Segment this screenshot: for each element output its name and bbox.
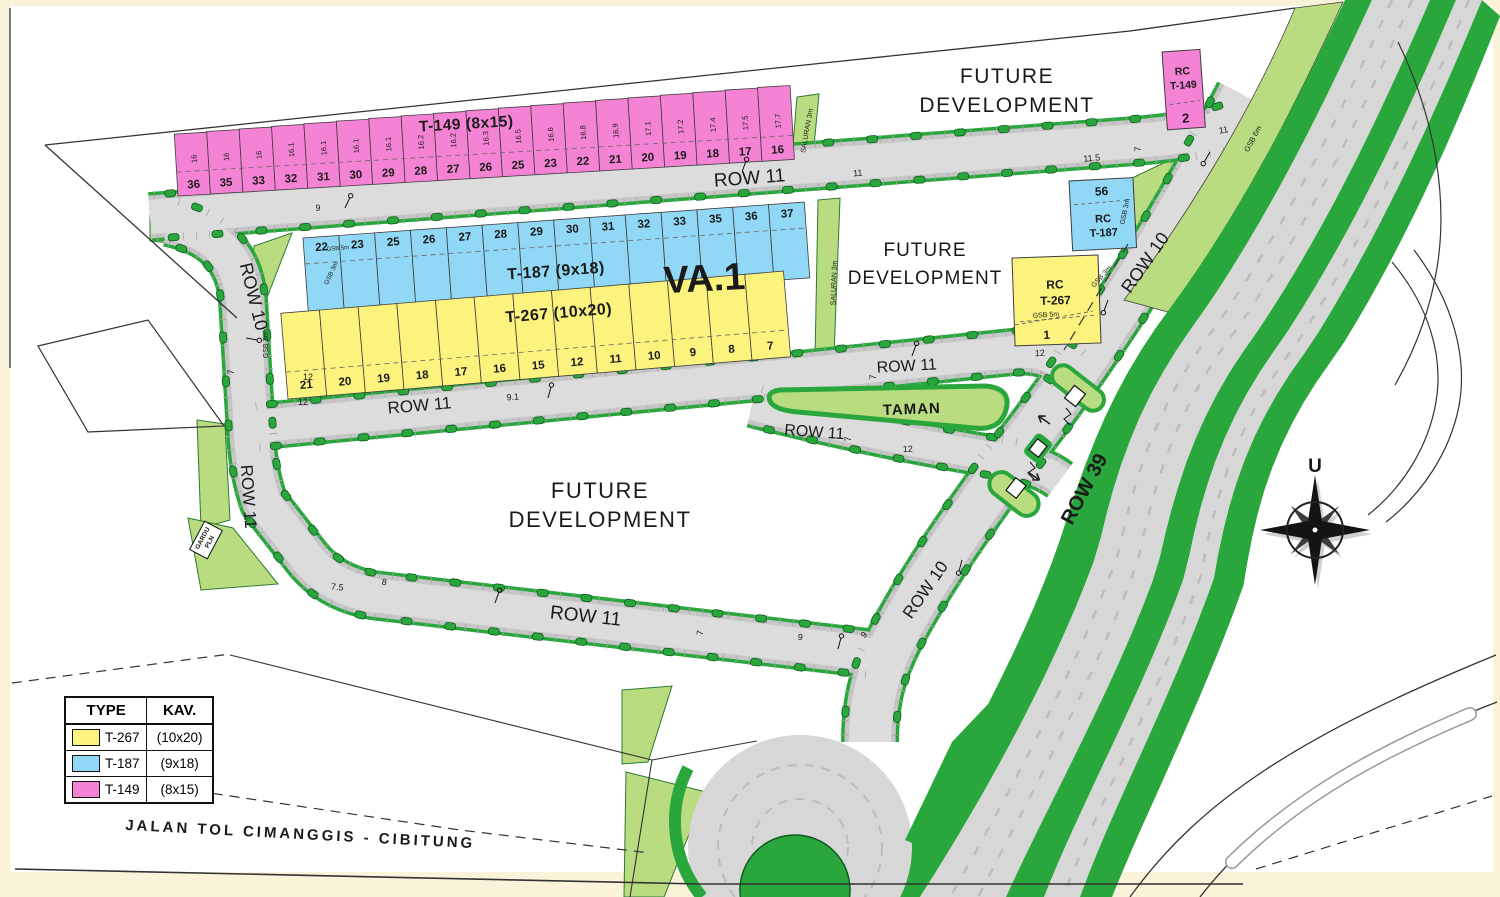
shrub <box>343 220 355 228</box>
dimension-label: 8 <box>381 577 387 587</box>
taman-label: TAMAN <box>883 400 942 419</box>
plot-number: 20 <box>338 376 352 389</box>
plot-number: 30 <box>349 169 362 182</box>
plot-number: 32 <box>284 173 297 186</box>
plot-number: 33 <box>673 216 687 229</box>
shrub <box>225 420 233 431</box>
dimension-label: 12 <box>303 372 313 382</box>
rc-t149-label: RC <box>1174 65 1190 78</box>
plot-number: 27 <box>446 163 459 176</box>
plot-number: 35 <box>709 213 723 226</box>
shrub <box>563 203 575 211</box>
rc-t267-number: 1 <box>1043 328 1050 342</box>
plot-frontage-dim: 16 <box>222 152 231 161</box>
shrub <box>712 609 724 617</box>
block-va1-label: VA.1 <box>662 256 746 302</box>
plot-number: 21 <box>609 154 623 167</box>
dimension-label: 7 <box>226 369 236 374</box>
shrub <box>927 377 939 385</box>
legend-swatch <box>72 755 100 772</box>
shrub <box>1178 154 1190 162</box>
plot-frontage-dim: 16.6 <box>546 127 556 142</box>
shrub <box>444 622 456 630</box>
shrub <box>575 638 587 646</box>
plot-number: 18 <box>706 148 720 161</box>
plot-number: 28 <box>494 228 508 241</box>
legend-type-label: T-267 <box>105 730 140 745</box>
shrub <box>708 399 720 407</box>
shrub <box>475 210 487 218</box>
dimension-label: 7 <box>695 630 705 636</box>
sidewalk-tick <box>841 720 849 721</box>
shrub <box>256 227 268 235</box>
rc-t187-number: 56 <box>1095 184 1109 199</box>
plot-number: 15 <box>531 359 545 372</box>
shrub <box>489 421 501 429</box>
legend-kav-value: (8x15) <box>146 777 212 802</box>
legend-type: T-267 <box>66 725 146 750</box>
legend-col-kav: KAV. <box>146 698 212 723</box>
shrub <box>799 619 811 627</box>
shrub <box>752 395 764 403</box>
shrub <box>219 332 227 343</box>
shrub <box>358 433 370 441</box>
shrub <box>401 429 413 437</box>
shrub <box>1013 369 1024 376</box>
plot-number: 25 <box>387 236 401 249</box>
shrub <box>168 233 180 241</box>
compass-hub <box>1312 527 1318 533</box>
shrub <box>663 648 675 656</box>
dimension-label: 11.5 <box>1083 152 1101 163</box>
road-label-row11: ROW 11 <box>876 356 937 376</box>
dimension-label: 7 <box>1133 146 1143 151</box>
legend: TYPE KAV. T-267(10x20)T-187(9x18)T-149(8… <box>64 696 214 804</box>
site-plan-canvas: 3616351633163216.13116.13016.12916.12816… <box>0 0 1500 897</box>
shrub <box>488 627 500 635</box>
future-development-label: FUTURE <box>960 65 1054 88</box>
plot-number: 16 <box>771 144 784 157</box>
plot-number: 36 <box>745 210 759 223</box>
legend-type-label: T-187 <box>105 756 140 771</box>
plot-number: 26 <box>422 234 436 247</box>
shrub <box>954 128 966 136</box>
plot-frontage-dim: 17.2 <box>676 119 686 134</box>
plot-number: 22 <box>576 156 589 169</box>
plot-frontage-dim: 16.2 <box>416 135 426 150</box>
plot-number: 30 <box>566 223 580 236</box>
shrub <box>431 213 443 221</box>
shrub <box>650 196 662 204</box>
shrub <box>1089 162 1101 170</box>
plot-frontage-dim: 17.7 <box>773 113 783 128</box>
shrub <box>272 458 281 470</box>
shrub <box>707 653 719 661</box>
plot-number: 12 <box>570 356 584 369</box>
shrub <box>782 186 794 194</box>
plot-frontage-dim: 16 <box>254 151 263 160</box>
shrub <box>1133 159 1145 167</box>
shrub <box>519 206 531 214</box>
shrub <box>314 437 326 445</box>
dimension-label: 9 <box>315 203 320 213</box>
shrub <box>870 179 882 187</box>
plot-number: 31 <box>317 171 331 184</box>
plot-frontage-dim: 16.1 <box>384 137 394 152</box>
plot-number: 29 <box>382 167 395 180</box>
plot-number: 28 <box>414 165 428 178</box>
shrub <box>966 331 978 339</box>
rc-t267-label2: T-267 <box>1040 293 1071 308</box>
shrub <box>843 625 855 633</box>
shrub <box>624 599 636 607</box>
shrub <box>445 425 457 433</box>
future-development-label: FUTURE <box>883 240 966 261</box>
shrub <box>664 404 676 412</box>
shrub <box>755 614 767 622</box>
gsb3-annotation: GSB 3m <box>263 332 270 359</box>
shrub <box>750 658 762 666</box>
rc-t187-label: RC <box>1095 213 1112 226</box>
shrub <box>449 578 461 586</box>
rc-t149-label2: T-149 <box>1170 79 1198 93</box>
rc-t267-label: RC <box>1046 277 1064 292</box>
future-development-label: DEVELOPMENT <box>919 94 1094 117</box>
shrub <box>668 604 680 612</box>
dimension-label: 11 <box>1218 124 1229 135</box>
shrub <box>879 340 891 348</box>
plot-number: 19 <box>674 150 687 163</box>
shrub <box>269 417 277 428</box>
plot-frontage-dim: 16.3 <box>481 131 491 146</box>
plot-number: 37 <box>780 208 794 221</box>
sidewalk-tick <box>893 724 901 725</box>
legend-header: TYPE KAV. <box>66 698 212 725</box>
dimension-label: 12 <box>903 444 914 455</box>
shrub <box>826 183 838 191</box>
future-development-label: DEVELOPMENT <box>509 507 692 532</box>
plot-number: 17 <box>454 366 468 379</box>
shrub <box>406 573 418 581</box>
plot-number: 25 <box>511 159 525 172</box>
plot-number: 32 <box>637 218 651 231</box>
shrub <box>958 172 970 180</box>
shrub <box>835 345 847 353</box>
shrub <box>212 230 224 238</box>
shrub <box>270 442 282 450</box>
legend-swatch <box>72 781 100 798</box>
shrub <box>581 594 593 602</box>
shrub <box>387 216 399 224</box>
legend-kav-value: (9x18) <box>146 751 212 776</box>
shrub <box>1001 169 1013 177</box>
compass-north-label: U <box>1308 456 1322 477</box>
shrub <box>823 139 835 147</box>
rc-t187-label2: T-187 <box>1089 227 1118 240</box>
legend-rows: T-267(10x20)T-187(9x18)T-149(8x15) <box>66 725 212 802</box>
shrub <box>838 668 850 676</box>
dimension-label: 12 <box>1035 348 1046 359</box>
shrub <box>841 706 849 718</box>
future-development-label: DEVELOPMENT <box>848 268 1003 289</box>
shrub <box>266 400 278 408</box>
shrub <box>893 711 901 723</box>
shrub <box>791 349 803 357</box>
plot-frontage-dim: 17.5 <box>741 115 751 130</box>
plot-frontage-dim: 16.8 <box>578 125 588 140</box>
dimension-label: 7 <box>843 436 853 441</box>
shrub <box>299 223 311 231</box>
dimension-label: 9 <box>797 632 803 642</box>
legend-type-label: T-149 <box>105 782 140 797</box>
plot-number: 23 <box>351 239 365 252</box>
rc-t267-plot: RC T-267 1 <box>1012 255 1101 346</box>
legend-swatch <box>72 729 100 746</box>
plot-number: 11 <box>609 353 623 366</box>
shrub <box>532 632 544 640</box>
shrub <box>266 373 274 384</box>
plot-frontage-dim: 16.1 <box>351 138 361 153</box>
shrub <box>866 135 878 143</box>
plot-number: 19 <box>377 372 391 385</box>
shrub <box>971 373 983 381</box>
plot-number: 10 <box>647 350 661 363</box>
legend-row: T-149(8x15) <box>66 776 212 802</box>
plot-frontage-dim: 17.1 <box>643 121 653 136</box>
shrub <box>229 466 238 478</box>
shrub <box>1045 166 1057 174</box>
dimension-label: 12 <box>298 397 308 407</box>
shrub <box>694 193 706 201</box>
plot-number: 31 <box>601 221 615 234</box>
plot-number: 7 <box>767 340 774 352</box>
legend-type: T-149 <box>66 777 146 802</box>
plot-number: 18 <box>415 369 429 382</box>
shrub <box>914 176 926 184</box>
shrub <box>401 617 413 625</box>
shrub <box>738 189 750 197</box>
shrub <box>577 412 589 420</box>
plot-number: 9 <box>689 347 696 359</box>
shrub <box>533 416 545 424</box>
shrub <box>537 589 549 597</box>
plot-frontage-dim: 16.5 <box>513 129 523 144</box>
dimension-label: 7 <box>868 374 878 379</box>
legend-type: T-187 <box>66 751 146 776</box>
dimension-label: 7.5 <box>331 581 344 592</box>
plot-frontage-dim: 16.2 <box>449 133 459 148</box>
shrub <box>222 376 230 387</box>
legend-row: T-187(9x18) <box>66 750 212 776</box>
shrub <box>910 132 922 140</box>
plot-number: 33 <box>252 175 265 188</box>
plot-frontage-dim: 16 <box>189 154 198 163</box>
shrub <box>794 663 806 671</box>
plot-frontage-dim: 16.9 <box>611 123 621 138</box>
shrub <box>607 199 619 207</box>
plot-number: 36 <box>187 179 200 192</box>
plot-number: 26 <box>479 161 492 174</box>
rc-t149-number: 2 <box>1182 110 1190 125</box>
shrub <box>923 335 935 343</box>
shrub <box>1129 115 1141 123</box>
plot-number: 23 <box>544 157 557 170</box>
plot-number: 29 <box>530 226 544 239</box>
site-plan: 3616351633163216.13116.13016.12916.12816… <box>0 0 1500 897</box>
plot-number: 27 <box>458 231 472 244</box>
plot-number: 20 <box>641 152 654 165</box>
dimension-label: 11 <box>853 168 863 179</box>
shrub <box>619 643 631 651</box>
legend-kav-value: (10x20) <box>146 725 212 750</box>
plot-number: 35 <box>219 177 233 190</box>
shrub <box>998 125 1010 133</box>
plot-frontage-dim: 17.4 <box>708 117 718 132</box>
legend-col-type: TYPE <box>66 698 146 723</box>
plot-number: 16 <box>493 363 507 376</box>
plot-frontage-dim: 16.1 <box>286 142 296 157</box>
shrub <box>1086 118 1098 126</box>
shrub <box>620 408 632 416</box>
shrub <box>1042 122 1054 130</box>
shrub <box>164 189 176 197</box>
plot-frontage-dim: 16.1 <box>319 140 329 155</box>
future-development-label: FUTURE <box>551 478 649 503</box>
open-space <box>197 420 230 528</box>
legend-row: T-267(10x20) <box>66 725 212 750</box>
rc-t149-plot: RC T-149 2 <box>1162 49 1205 129</box>
dimension-label: 9.1 <box>506 391 519 402</box>
plot-number: 17 <box>738 146 751 159</box>
